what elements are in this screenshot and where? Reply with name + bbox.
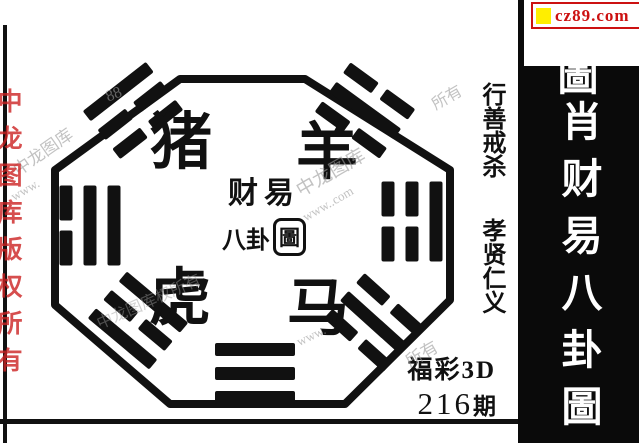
yang-line — [215, 367, 295, 380]
yellow-square-icon — [536, 8, 551, 24]
issue-block: 福彩3D 216期 — [396, 350, 496, 422]
yin-line — [60, 186, 73, 266]
site-badge[interactable]: cz89.com — [531, 2, 639, 29]
yang-line — [215, 343, 295, 356]
yin-line — [406, 182, 419, 262]
bagua-poster: 猪 羊 虎 马 财易 八卦 圖 福彩3D 216期 中龙图库 www. 88 中… — [0, 0, 639, 443]
center-seal-stamp: 圖 — [273, 218, 306, 256]
banner-vertical-title: 肖财易八卦圖 — [552, 100, 604, 442]
yang-line — [84, 186, 97, 266]
side-motto-column: 行善戒杀 孝贤仁义 — [468, 82, 514, 314]
zodiac-horse: 马 — [287, 278, 349, 340]
issue-game-label: 福彩3D — [396, 350, 496, 386]
trigram-right — [382, 182, 443, 262]
center-title-line1: 财易 — [218, 168, 310, 212]
trigram-left — [60, 186, 121, 266]
center-title-line2-text: 八卦 — [222, 220, 270, 255]
yang-line — [215, 391, 295, 404]
yang-line — [430, 182, 443, 262]
watermark-red-vertical: 中龙图库版权所有 — [0, 88, 14, 384]
yin-line — [382, 182, 395, 262]
trigram-bottom — [215, 343, 295, 404]
center-title: 财易 八卦 圖 — [218, 168, 310, 256]
issue-suffix: 期 — [473, 394, 496, 419]
side-motto-bottom: 孝贤仁义 — [478, 218, 504, 314]
yang-line — [108, 186, 121, 266]
zodiac-tiger: 虎 — [149, 268, 211, 330]
site-link[interactable]: cz89.com — [555, 6, 630, 26]
center-title-line2: 八卦 圖 — [218, 218, 310, 256]
issue-number: 216 — [418, 386, 474, 421]
side-motto-top: 行善戒杀 — [478, 82, 504, 178]
zodiac-pig: 猪 — [150, 112, 212, 174]
